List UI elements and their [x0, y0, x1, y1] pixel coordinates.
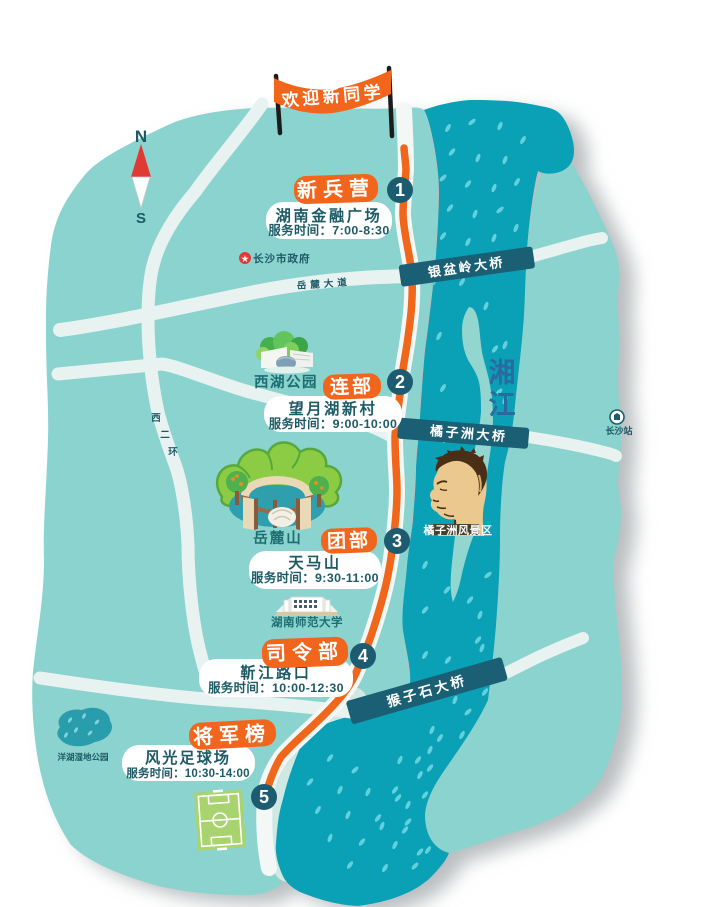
svg-text:岳麓山: 岳麓山 — [253, 529, 303, 547]
svg-text:服务时间：9:00-10:00: 服务时间：9:00-10:00 — [269, 416, 398, 431]
svg-text:西湖公园: 西湖公园 — [254, 374, 318, 391]
svg-text:1: 1 — [395, 180, 405, 200]
svg-text:新兵营: 新兵营 — [297, 176, 376, 203]
svg-text:橘子洲风景区: 橘子洲风景区 — [423, 523, 493, 537]
svg-text:湖南师范大学: 湖南师范大学 — [271, 615, 343, 629]
svg-text:服务时间：9:30-11:00: 服务时间：9:30-11:00 — [251, 570, 379, 585]
svg-text:洋湖湿地公园: 洋湖湿地公园 — [57, 752, 108, 762]
svg-text:5: 5 — [259, 787, 269, 807]
svg-text:4: 4 — [358, 646, 368, 666]
svg-text:3: 3 — [392, 531, 402, 551]
svg-text:长沙市政府: 长沙市政府 — [253, 252, 311, 265]
svg-text:风光足球场: 风光足球场 — [145, 749, 231, 767]
svg-text:S: S — [136, 210, 146, 227]
svg-text:服务时间：10:30-14:00: 服务时间：10:30-14:00 — [126, 766, 249, 780]
svg-text:环: 环 — [168, 447, 178, 458]
svg-text:服务时间：7:00-8:30: 服务时间：7:00-8:30 — [268, 223, 389, 238]
svg-text:二: 二 — [160, 430, 170, 441]
svg-text:司令部: 司令部 — [266, 639, 345, 666]
svg-text:N: N — [135, 127, 147, 146]
svg-text:湘: 湘 — [489, 358, 516, 388]
svg-text:西: 西 — [151, 413, 161, 424]
svg-text:2: 2 — [395, 372, 405, 392]
svg-text:长沙站: 长沙站 — [605, 425, 632, 436]
svg-text:江: 江 — [489, 390, 516, 420]
svg-text:★: ★ — [241, 255, 249, 264]
svg-text:连部: 连部 — [330, 374, 375, 399]
svg-text:天马山: 天马山 — [288, 555, 341, 572]
svg-text:望月湖新村: 望月湖新村 — [289, 400, 378, 418]
svg-text:团部: 团部 — [327, 528, 372, 553]
svg-text:服务时间：10:00-12:30: 服务时间：10:00-12:30 — [208, 680, 344, 695]
svg-text:湖南金融广场: 湖南金融广场 — [276, 207, 383, 225]
